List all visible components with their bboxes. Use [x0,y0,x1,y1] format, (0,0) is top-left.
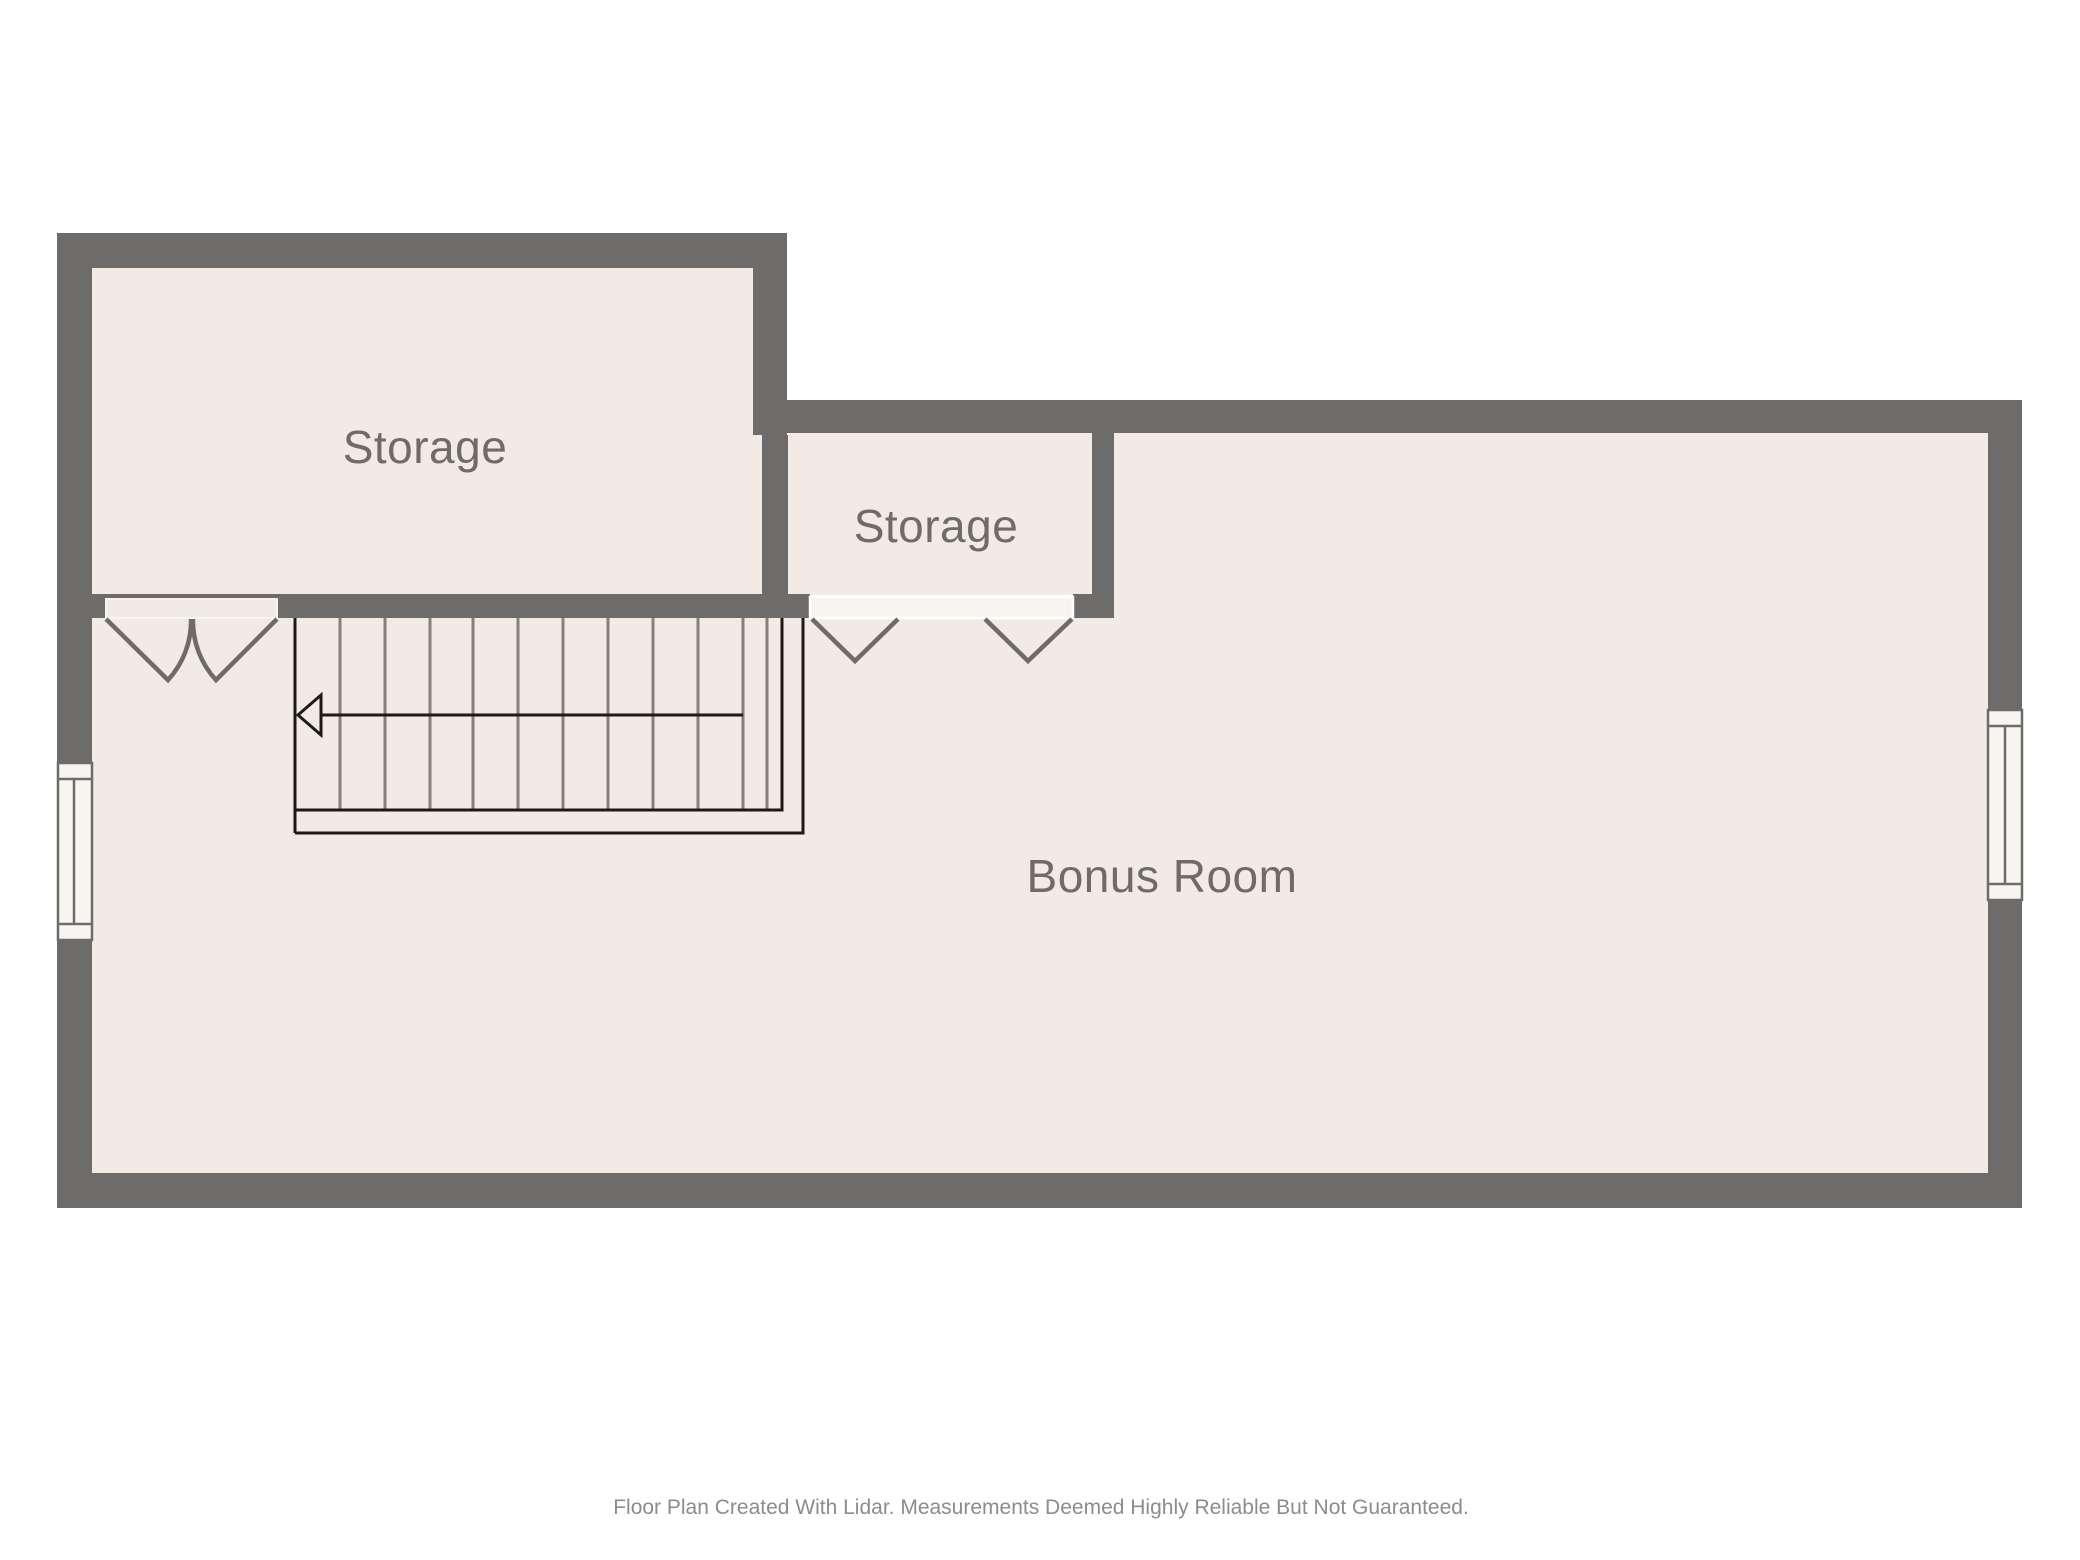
bonus-room-label: Bonus Room [1027,850,1298,902]
storage-1-floor-sliver [753,435,762,595]
disclaimer-text: Floor Plan Created With Lidar. Measureme… [613,1496,1469,1519]
wall-bonus-top [787,400,2022,433]
wall-left-outer [57,233,92,1208]
wall-bottom-outer [57,1173,2022,1208]
wall-storage1-storage2-divider [762,435,788,595]
storage-2-label: Storage [854,500,1019,552]
wall-storage2-bottom-stub [1073,594,1114,618]
floor-plan-canvas: Storage Storage Bonus Room Floor Plan Cr… [0,0,2080,1560]
storage-1-label: Storage [343,421,508,473]
window-right [1988,710,2022,900]
wall-storage1-top [57,233,787,268]
door-threshold [106,599,277,618]
door-threshold [810,597,1073,618]
bonus-room-upper-floor [1114,433,1988,619]
wall-storage2-right [1092,433,1114,618]
wall-storage1-right-upper [753,233,787,435]
window-left [58,763,92,940]
floor-plan-svg: Storage Storage Bonus Room Floor Plan Cr… [0,0,2080,1560]
